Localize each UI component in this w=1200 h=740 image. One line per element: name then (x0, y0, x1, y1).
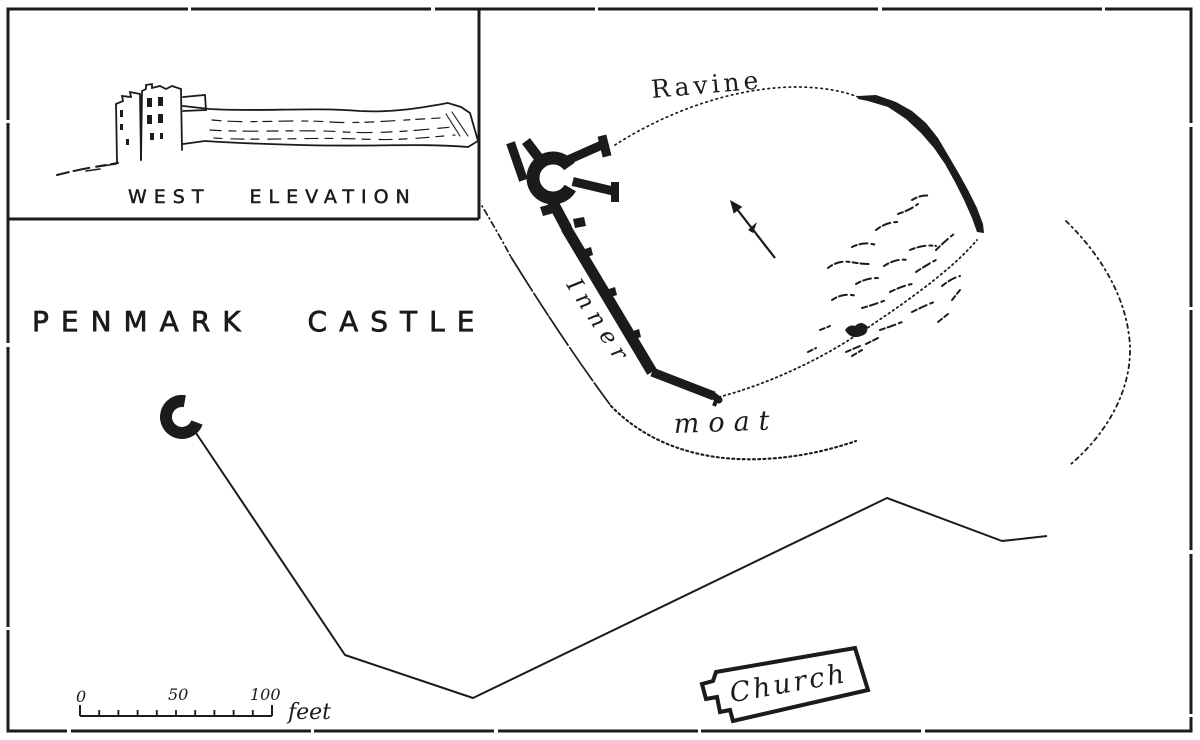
inner-scarp-dotted-line (719, 240, 977, 397)
church-plan: Church (702, 648, 868, 721)
field-boundary-line (196, 433, 1047, 698)
scale-hundred-label: 100 (250, 685, 281, 704)
penmark-castle-plan: WEST ELEVATION PENMARK CASTLE Ravine (0, 0, 1200, 740)
inner-moat-label-moat: moat (673, 405, 779, 440)
detached-wall-fragment (512, 147, 522, 176)
plan-canvas: WEST ELEVATION PENMARK CASTLE Ravine (0, 0, 1200, 740)
map-border (8, 9, 1191, 731)
scale-zero-label: 0 (76, 687, 86, 706)
round-tower-ruin (166, 401, 197, 433)
scale-unit-label: feet (286, 700, 331, 725)
scarp-hachures (808, 196, 960, 357)
outer-ditch-arc (1066, 221, 1130, 464)
west-elevation-sketch (57, 84, 478, 175)
inset-panel: WEST ELEVATION (8, 9, 479, 219)
north-arrow-icon (730, 200, 775, 258)
scale-bar: 0 50 100 feet (76, 685, 331, 725)
scale-fifty-label: 50 (168, 685, 188, 704)
map-title: PENMARK CASTLE (32, 305, 486, 338)
west-elevation-caption: WEST ELEVATION (128, 186, 417, 208)
outer-moat-line (482, 206, 856, 459)
northeast-curtain-wall (858, 95, 984, 233)
ravine-label: Ravine (650, 65, 763, 104)
